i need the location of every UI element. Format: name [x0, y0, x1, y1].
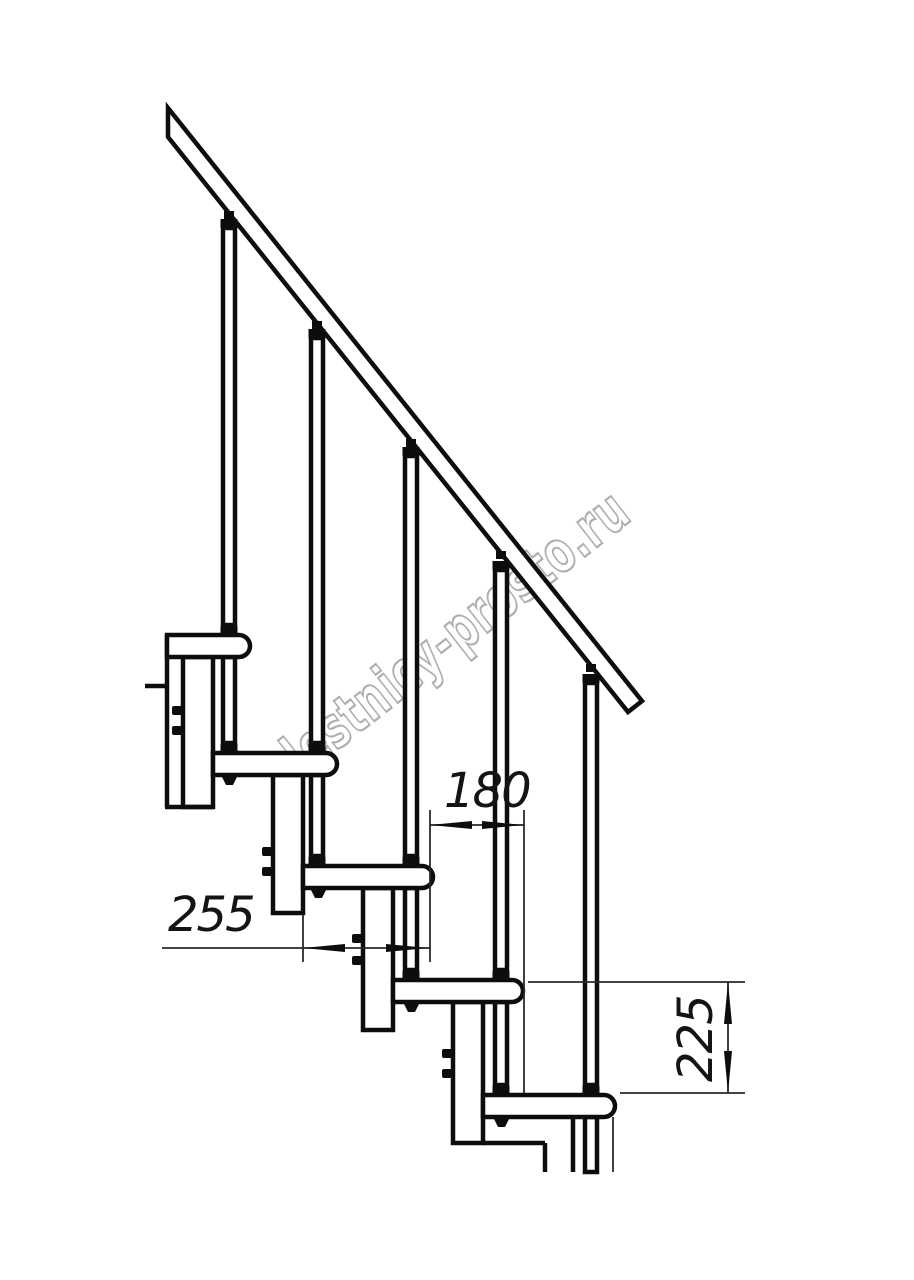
- stair-section-drawing: lestnicy-prosto.ru: [0, 0, 914, 1280]
- tread: [483, 1095, 615, 1117]
- baluster: [221, 211, 238, 753]
- baluster: [403, 439, 420, 980]
- tread: [303, 866, 433, 888]
- tread: [167, 635, 250, 657]
- dimension-225: 225: [528, 982, 745, 1093]
- dim-label-255: 255: [168, 887, 254, 943]
- dim-label-225: 225: [668, 996, 724, 1082]
- tread: [393, 980, 523, 1002]
- baluster: [309, 321, 326, 866]
- stair-drawing-page: lestnicy-prosto.ru: [0, 0, 914, 1280]
- tread: [213, 753, 337, 775]
- dim-label-180: 180: [444, 763, 530, 819]
